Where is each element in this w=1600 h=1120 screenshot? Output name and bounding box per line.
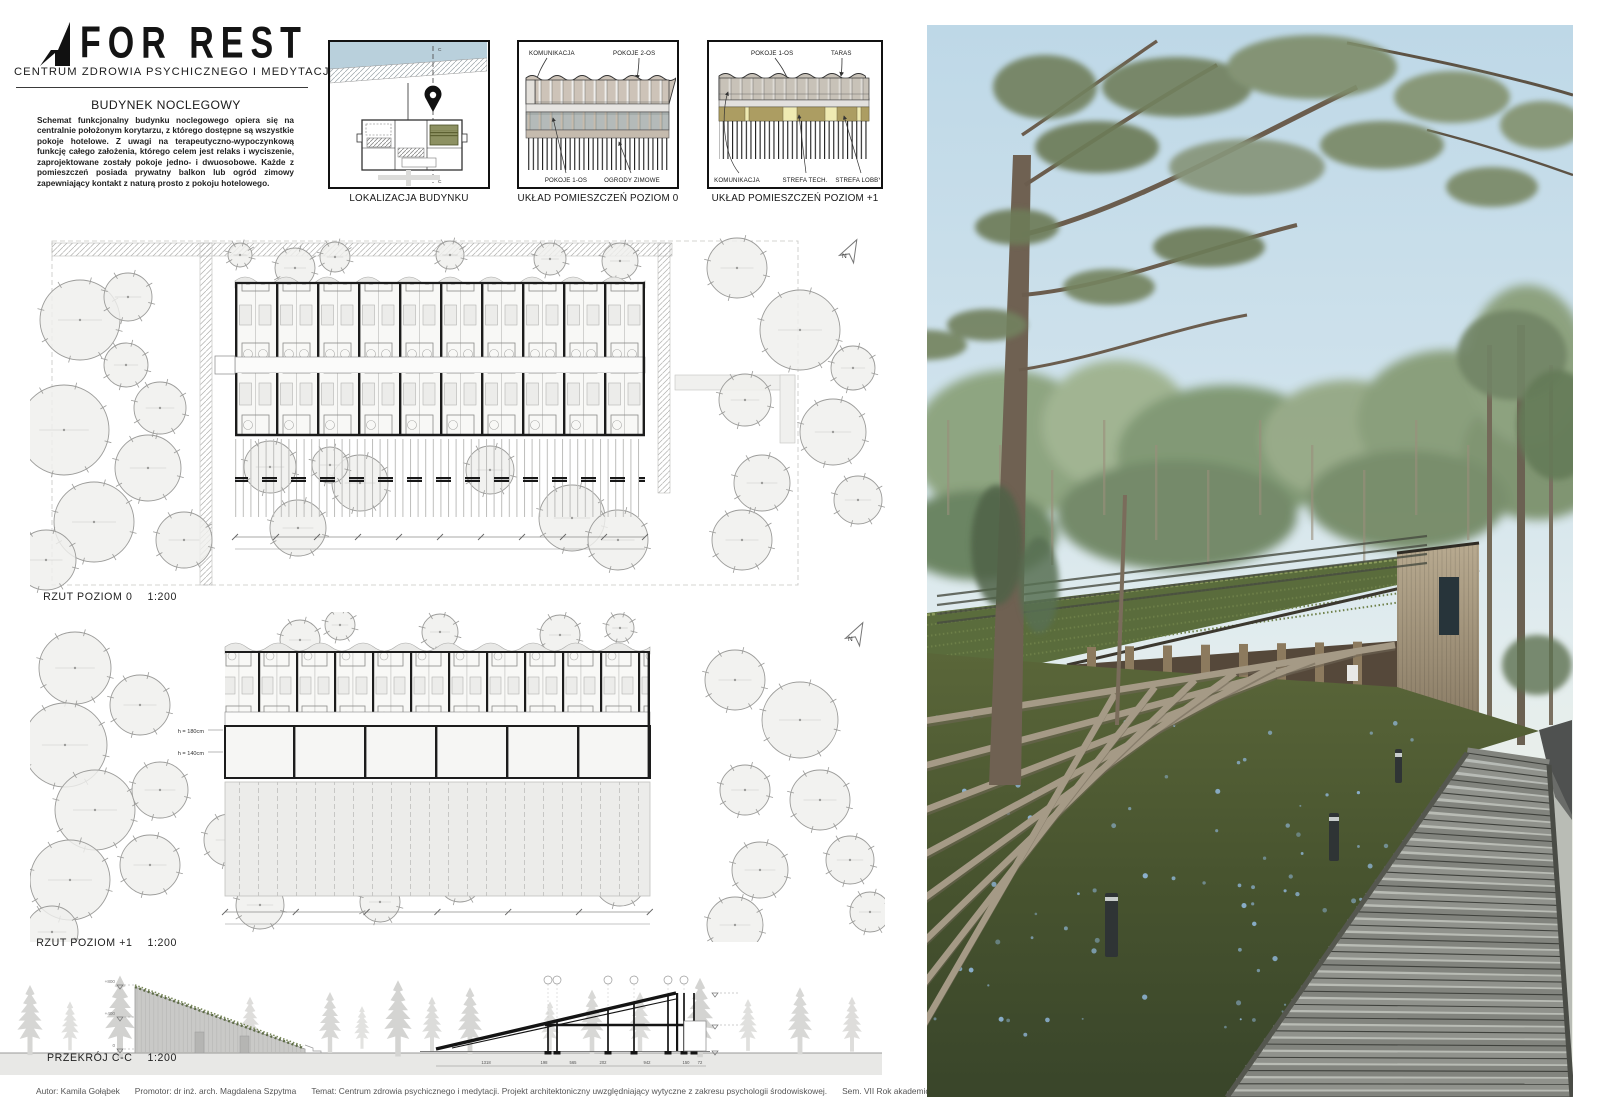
h140-label: h = 140cm	[178, 751, 205, 757]
dimension-lines	[222, 909, 653, 924]
building-footprint	[357, 120, 467, 170]
road-right	[658, 243, 670, 493]
dim-72: 72	[698, 1060, 703, 1065]
footer-promoter: Promotor: dr inż. arch. Magdalena Szpytm…	[135, 1086, 297, 1096]
location-map: C C	[330, 42, 487, 187]
building-level0	[215, 277, 645, 517]
scheme-bands	[526, 76, 676, 171]
corridor	[225, 712, 650, 726]
section-mark-top: C	[438, 47, 442, 53]
building-elevation: +800 +400 0	[105, 979, 321, 1055]
label-taras: TARAS	[831, 50, 852, 57]
dim-198: 198	[541, 1060, 549, 1065]
garden-wall-dashes	[235, 477, 645, 482]
render-scene	[927, 25, 1573, 1097]
label-komunikacja: KOMUNIKACJA	[529, 50, 575, 57]
north-arrow: N	[839, 236, 863, 263]
brand-rule	[16, 87, 308, 88]
access-path-corner	[780, 375, 795, 443]
label-strefa-tech: STREFA TECH.	[782, 177, 827, 184]
intro-paragraph: Schemat funkcjonalny budynku noclegowego…	[37, 116, 294, 189]
footer-credits: Autor: Kamila Gołąbek Promotor: dr inż. …	[36, 1086, 896, 1096]
dim-150: 150	[683, 1060, 691, 1065]
footer-topic: Temat: Centrum zdrowia psychicznego i me…	[311, 1086, 827, 1096]
label-ogrody-zimowe: OGRODY ZIMOWE	[604, 177, 660, 184]
road-top	[52, 243, 672, 256]
map-pin-icon	[425, 86, 442, 112]
scheme-bands	[719, 74, 869, 160]
tall-window	[1439, 577, 1459, 635]
diagram-level1-scheme: POKOJE 1-OS TARAS KOMUNIKACJA STREFA TEC…	[707, 40, 883, 189]
label-pokoje-1os: POKOJE 1-OS	[545, 177, 587, 184]
dim-202: 202	[600, 1060, 608, 1065]
dim-942: 942	[644, 1060, 652, 1065]
plan0-label: RZUT POZIOM 01:200	[43, 591, 177, 603]
level-plus800: +800	[105, 979, 116, 984]
section-label: PRZEKRÓJ C-C1:200	[47, 1052, 177, 1064]
path-vertical	[406, 170, 411, 186]
label-pokoje-2os: POKOJE 2-OS	[613, 50, 655, 57]
north-label: N	[848, 636, 853, 643]
level1-scheme: POKOJE 1-OS TARAS KOMUNIKACJA STREFA TEC…	[709, 42, 880, 187]
floor-plan-level0: N	[30, 225, 885, 597]
north-arrow: N	[845, 619, 869, 646]
label-komunikacja: KOMUNIKACJA	[714, 177, 760, 184]
footer-author: Autor: Kamila Gołąbek	[36, 1086, 120, 1096]
section-title: BUDYNEK NOCLEGOWY	[30, 98, 302, 112]
level-plus400: +400	[105, 1011, 116, 1016]
entrance	[215, 356, 235, 374]
lower-rooms	[225, 726, 650, 778]
render-photo	[927, 25, 1573, 1097]
logo-icon	[34, 20, 80, 70]
diagram-caption: LOKALIZACJA BUDYNKU	[328, 193, 490, 204]
timber-wall	[1397, 543, 1479, 713]
floor-plan-level1: h = 180cm h = 140cm N	[30, 612, 885, 942]
corridor	[235, 357, 645, 373]
presentation-board: FOR REST CENTRUM ZDROWIA PSYCHICZNEGO I …	[0, 0, 905, 1120]
diagram-level0-scheme: KOMUNIKACJA POKOJE 2-OS POKOJE 1-OS OGRO…	[517, 40, 679, 189]
h180-label: h = 180cm	[178, 729, 205, 735]
diagram-caption: UKŁAD POMIESZCZEŃ POZIOM +1	[707, 193, 883, 204]
ramp-steps	[305, 1045, 321, 1053]
level0-scheme: KOMUNIKACJA POKOJE 2-OS POKOJE 1-OS OGRO…	[519, 42, 676, 187]
diagram-caption: UKŁAD POMIESZCZEŃ POZIOM 0	[517, 193, 679, 204]
dim-1318: 1318	[481, 1060, 491, 1065]
level-zero: 0	[112, 1043, 115, 1048]
label-pokoje-1os: POKOJE 1-OS	[751, 50, 793, 57]
label-strefa-lobby: STREFA LOBBY	[835, 177, 880, 184]
building-level1	[225, 643, 650, 896]
logo-title: FOR REST	[80, 18, 308, 69]
diagram-location: C C LOKA	[328, 40, 490, 189]
height-annotations: h = 180cm h = 140cm	[178, 729, 223, 757]
dim-565: 565	[570, 1060, 578, 1065]
north-label: N	[842, 253, 847, 260]
logo-subtitle: CENTRUM ZDROWIA PSYCHICZNEGO I MEDYTACJI	[14, 66, 310, 78]
